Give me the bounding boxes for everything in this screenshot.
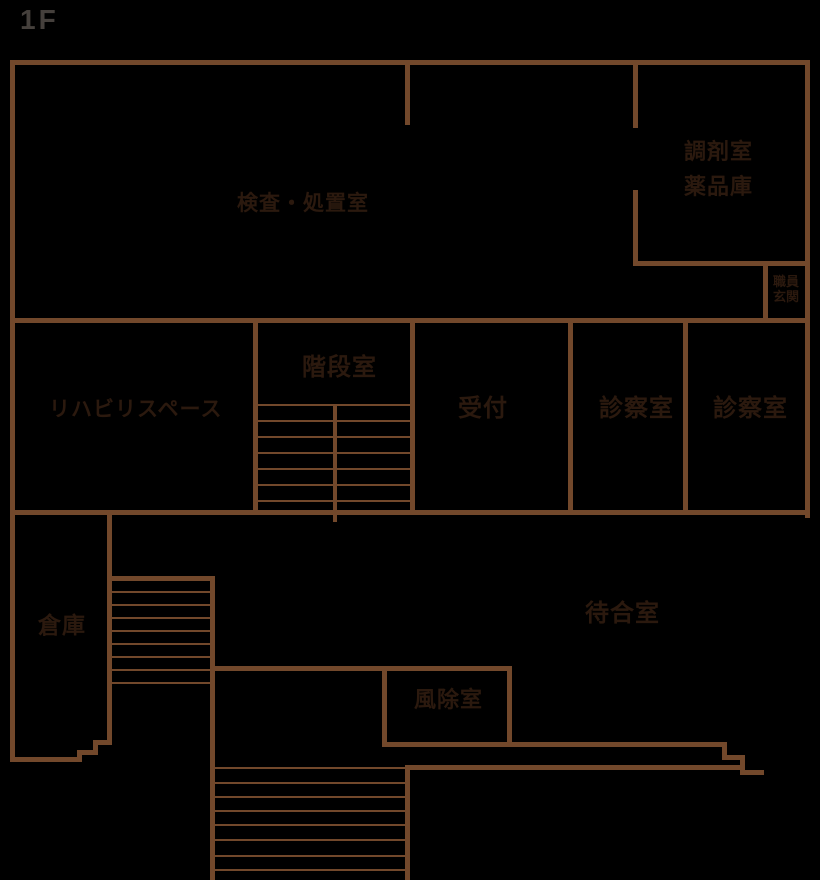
floor-label: 1F xyxy=(20,6,59,34)
stair-tread xyxy=(258,484,410,486)
wall-top-stub xyxy=(405,60,410,125)
floor-plan: 1F xyxy=(0,0,820,880)
room-label-windbreak-room: 風除室 xyxy=(414,690,483,712)
stair-tread xyxy=(258,500,410,502)
wall-windbreak-right xyxy=(507,666,512,747)
room-label-staff-entrance-line1: 職員 xyxy=(773,276,799,289)
stair-tread xyxy=(112,643,210,645)
wall-outer-left xyxy=(10,60,15,762)
wall-bottomstair-right xyxy=(405,765,410,880)
stair-tread xyxy=(258,420,410,422)
room-label-storage: 倉庫 xyxy=(38,615,86,638)
stair-tread xyxy=(214,796,405,798)
wall-outer-bottom-left xyxy=(10,757,80,762)
wall-dispensary-left-lower xyxy=(633,190,638,266)
stair-tread xyxy=(112,669,210,671)
wall-outer-top xyxy=(10,60,810,65)
stair-tread xyxy=(112,656,210,658)
wall-entry-top xyxy=(210,666,512,671)
stair-tread xyxy=(214,824,405,826)
entry-step-left-v1 xyxy=(77,750,82,762)
wall-exam1-exam2 xyxy=(683,318,688,515)
wall-reception-exam1 xyxy=(568,318,573,515)
room-label-dispensary-line2: 薬品庫 xyxy=(684,177,753,199)
stair-tread xyxy=(258,452,410,454)
stair-tread xyxy=(214,782,405,784)
stair-tread xyxy=(214,855,405,857)
room-label-reception: 受付 xyxy=(458,396,508,420)
wall-windbreak-left xyxy=(382,666,387,747)
room-label-waiting-room: 待合室 xyxy=(585,601,660,625)
wall-dispensary-bottom xyxy=(633,261,810,266)
wall-entry-bottom xyxy=(382,742,727,747)
stair-tread xyxy=(258,436,410,438)
stair-tread xyxy=(112,630,210,632)
wall-storage-right xyxy=(107,510,112,744)
room-label-rehab-space: リハビリスペース xyxy=(49,399,222,420)
stair-tread xyxy=(214,869,405,871)
room-label-exam-treatment: 検査・処置室 xyxy=(237,193,369,214)
stair-tread xyxy=(112,591,210,593)
wall-outer-right xyxy=(805,60,810,518)
entry-step-right-h2 xyxy=(740,770,764,775)
wall-stairwell-reception xyxy=(410,318,415,515)
stair-tread xyxy=(112,617,210,619)
wall-dispensary-left-upper xyxy=(633,60,638,128)
stair-tread xyxy=(112,604,210,606)
stair-tread xyxy=(214,767,405,769)
stair-tread xyxy=(258,468,410,470)
wall-leftstair-top xyxy=(107,576,214,581)
stair-tread xyxy=(258,404,410,406)
stair-tread xyxy=(112,682,210,684)
stair-tread xyxy=(214,839,405,841)
wall-corridor-lower xyxy=(407,765,745,770)
wall-staffbox-left xyxy=(763,261,768,323)
stair-tread xyxy=(214,810,405,812)
room-label-staff-entrance-line2: 玄関 xyxy=(773,291,799,304)
room-label-exam-room-1: 診察室 xyxy=(599,396,674,420)
room-label-stairwell: 階段室 xyxy=(302,355,377,379)
room-label-exam-room-2: 診察室 xyxy=(713,396,788,420)
wall-corridor-left xyxy=(210,576,215,880)
room-label-dispensary-line1: 調剤室 xyxy=(684,142,753,164)
